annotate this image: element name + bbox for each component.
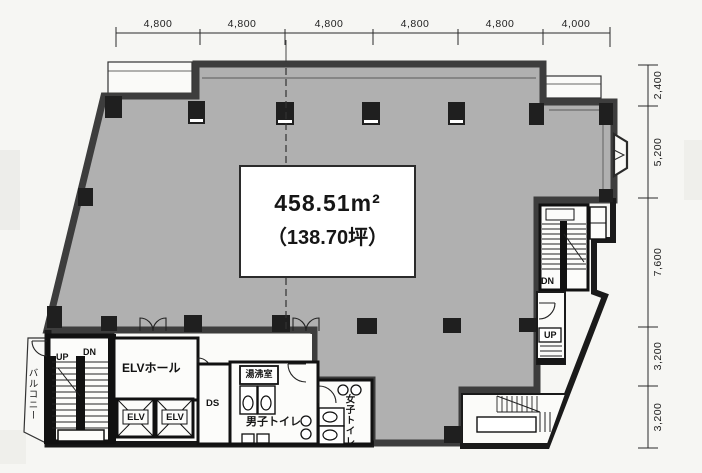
- balcony-label: バルコニー: [27, 368, 37, 424]
- stairs-dn-label-right: DN: [541, 277, 554, 286]
- dim-label-top-6: 4,000: [546, 19, 606, 30]
- room-label-elv-hall: ELVホール: [122, 362, 180, 374]
- dim-label-top-5: 4,800: [470, 19, 530, 30]
- bay-window: [614, 134, 627, 176]
- elevator-2-label: ELV: [165, 413, 185, 423]
- balcony-top-left: [108, 62, 192, 97]
- dim-label-top-2: 4,800: [212, 19, 272, 30]
- area-value: 458.51m²: [242, 192, 413, 215]
- right-exit-and-up-stair: [537, 292, 565, 364]
- stairs-up-label-left: UP: [56, 353, 69, 362]
- dim-label-top-1: 4,800: [128, 19, 188, 30]
- elevator-1-label: ELV: [126, 413, 146, 423]
- dim-label-top-3: 4,800: [299, 19, 359, 30]
- dim-label-right-4: 3,200: [653, 328, 665, 384]
- balcony-top-right: [546, 76, 601, 98]
- room-label-mens-toilet: 男子トイレ: [246, 417, 301, 428]
- area-label-box: [240, 166, 415, 277]
- floorplan-page: 4,800 4,800 4,800 4,800 4,800 4,000 2,40…: [0, 0, 702, 473]
- dim-label-right-5: 3,200: [653, 389, 665, 445]
- room-label-kitchenette: 湯沸室: [241, 370, 277, 379]
- room-label-ds: DS: [206, 399, 219, 409]
- room-label-womens-toilet: 女子トイレ: [344, 394, 354, 446]
- stairs-up-label-right: UP: [544, 331, 557, 340]
- dim-label-right-1: 2,400: [653, 57, 665, 113]
- area-tsubo: （138.70坪）: [242, 228, 413, 248]
- dim-label-right-2: 5,200: [653, 124, 665, 180]
- dim-label-right-3: 7,600: [653, 234, 665, 290]
- dim-label-top-4: 4,800: [385, 19, 445, 30]
- stairs-dn-label-left: DN: [83, 348, 96, 357]
- escape-stair-room: [462, 394, 566, 444]
